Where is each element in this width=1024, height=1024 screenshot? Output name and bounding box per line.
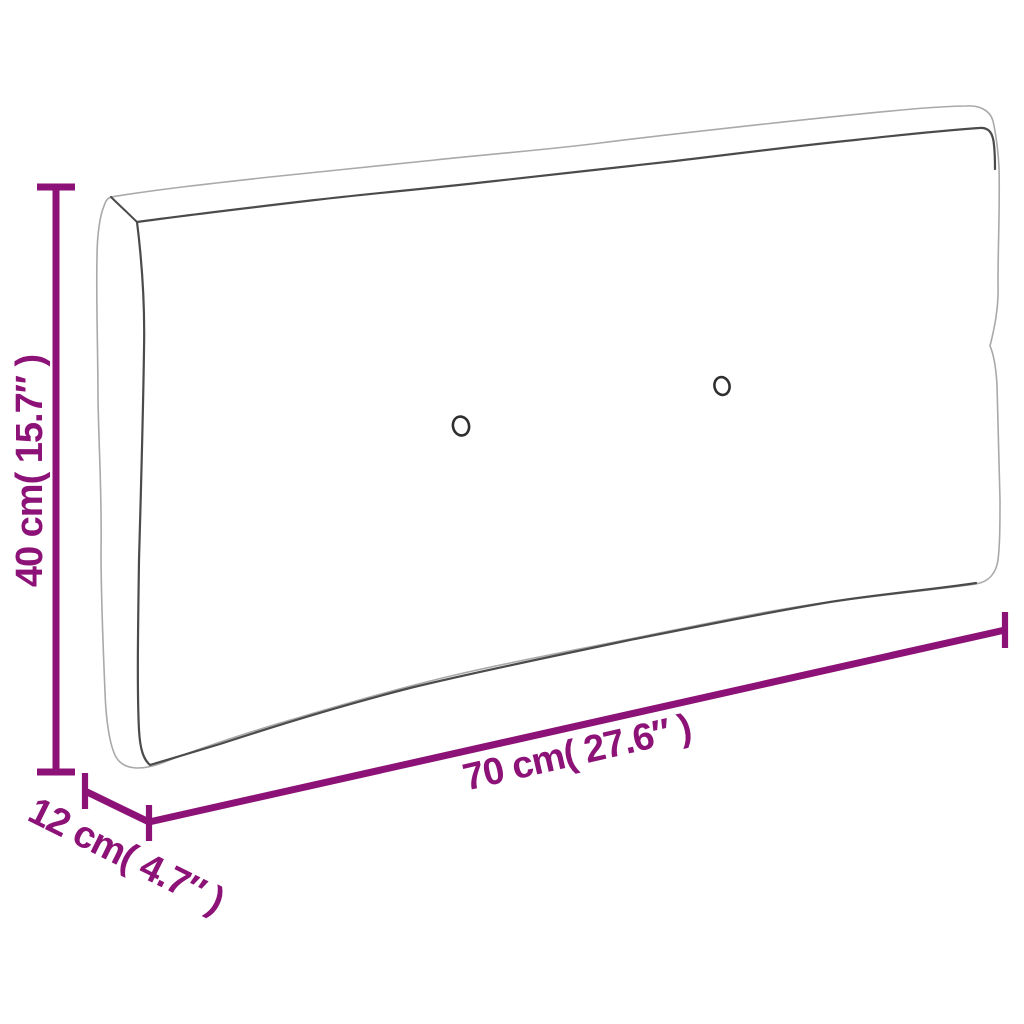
diagram-canvas: 40 cm( 15.7″ ) 70 cm( 27.6″ ) 12 cm( 4.7… <box>0 0 1024 1024</box>
height-dimension-label: 40 cm( 15.7″ ) <box>11 355 49 587</box>
cushion-outline <box>97 106 1000 768</box>
